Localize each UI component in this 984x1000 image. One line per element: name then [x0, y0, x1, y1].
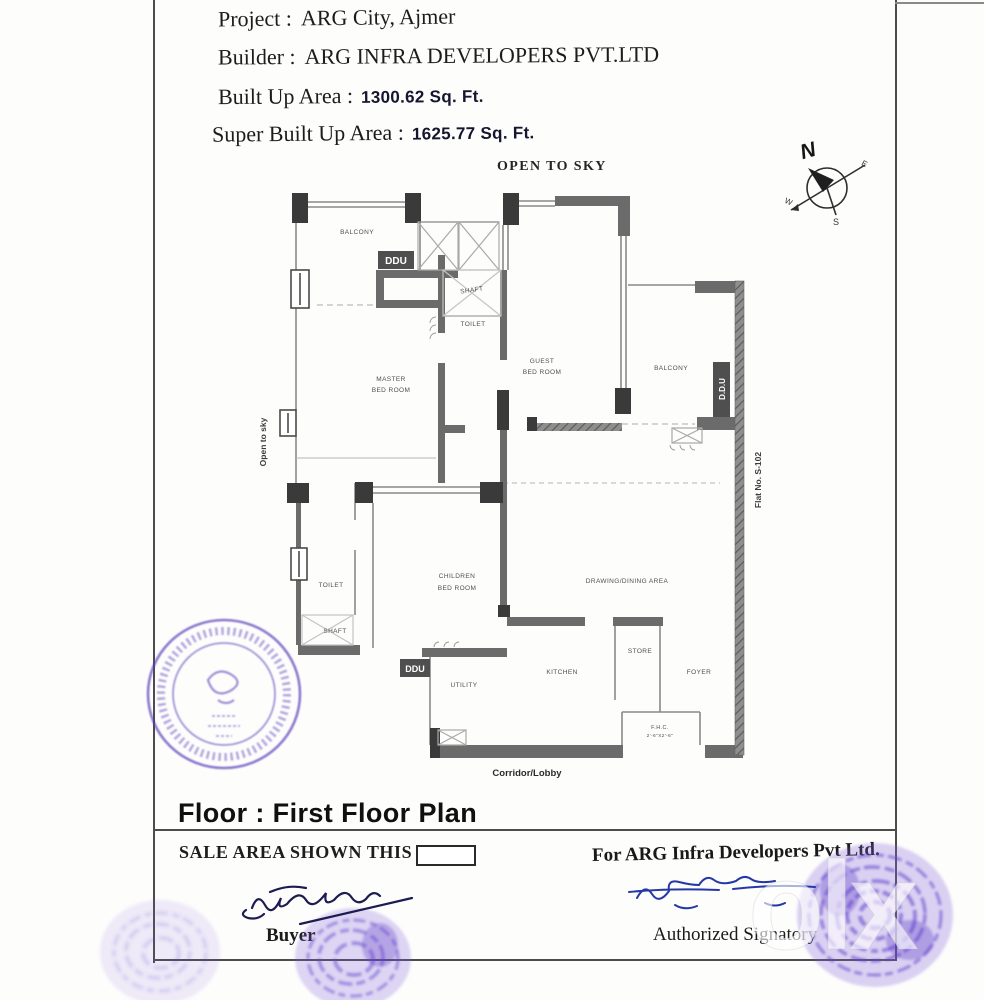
scanned-floor-plan-document: Project : ARG City, Ajmer Builder : ARG …: [0, 0, 984, 1000]
builder-row: Builder : ARG INFRA DEVELOPERS PVT.LTD: [218, 41, 659, 70]
project-label: Project :: [218, 6, 292, 33]
project-value: ARG City, Ajmer: [301, 4, 456, 32]
room-label-children-1: CHILDREN: [439, 573, 475, 580]
sale-area-swatch-box: [416, 845, 476, 866]
room-label-guest-1: GUEST: [530, 358, 554, 365]
room-label-fhc-2: 2'-6"X2'-6": [647, 733, 674, 739]
door-jambs: [287, 193, 631, 758]
super-built-up-label: Super Built Up Area :: [212, 120, 404, 148]
doc-border-left: [153, 0, 155, 963]
guest-window-sill: [533, 423, 622, 431]
right-exterior-wall: [735, 281, 744, 755]
builder-value: ARG INFRA DEVELOPERS PVT.LTD: [305, 41, 660, 69]
thin-walls: [296, 200, 700, 758]
builder-label: Builder :: [218, 44, 296, 71]
room-label-children-2: BED ROOM: [438, 585, 477, 592]
compass-south-label: S: [833, 217, 839, 227]
buyer-signature: [230, 870, 450, 940]
notary-stamp: [138, 608, 310, 780]
ddu-right-label: D.D.U: [718, 378, 727, 400]
doc-border-right: [895, 0, 897, 961]
built-up-value: 1300.62 Sq. Ft.: [361, 87, 484, 108]
sale-area-label: SALE AREA SHOWN THIS: [179, 842, 412, 863]
room-label-master-1: MASTER: [376, 376, 406, 383]
ddu-top-label: DDU: [385, 256, 407, 267]
ddu-bottom-label: DDU: [405, 664, 425, 674]
room-label-balcony-right: BALCONY: [654, 365, 688, 372]
compass-needle: [808, 168, 834, 192]
built-up-label: Built Up Area :: [218, 83, 353, 110]
room-label-foyer: FOYER: [687, 669, 711, 676]
room-label-balcony-top-left: BALCONY: [340, 229, 374, 236]
room-label-fhc-1: F.H.C.: [651, 725, 669, 731]
olx-watermark: olx: [748, 835, 914, 978]
room-label-kitchen: KITCHEN: [546, 669, 577, 676]
floor-plan-svg: DDU D.D.U DDU BALCONY SHAFT TOILET MASTE…: [250, 155, 770, 795]
room-label-toilet-upper: TOILET: [460, 321, 485, 328]
room-label-toilet-lower: TOILET: [318, 582, 343, 589]
faint-lines: [296, 458, 720, 483]
project-row: Project : ARG City, Ajmer: [218, 4, 456, 33]
room-label-guest-2: BED ROOM: [523, 369, 562, 376]
doc-border-top-right: [895, 2, 984, 4]
super-built-up-value: 1625.77 Sq. Ft.: [412, 123, 535, 144]
corridor-lobby-label: Corridor/Lobby: [492, 768, 562, 779]
room-label-shaft-lower: SHAFT: [323, 628, 346, 635]
room-label-drawing-dining: DRAWING/DINING AREA: [586, 578, 669, 585]
room-label-store: STORE: [628, 648, 653, 655]
fingerprint-left: [88, 890, 238, 1000]
room-label-master-2: BED ROOM: [372, 387, 411, 394]
open-to-sky-left-label: Open to sky: [258, 417, 268, 466]
flat-no-label: Flat No. S-102: [753, 452, 763, 508]
floor-title: Floor : First Floor Plan: [178, 798, 477, 829]
compass-icon: N E S W: [782, 130, 874, 230]
window-blocks: [280, 270, 309, 580]
super-built-up-area-row: Super Built Up Area : 1625.77 Sq. Ft.: [212, 118, 535, 147]
room-label-utility: UTILITY: [451, 682, 478, 689]
walls: [296, 196, 743, 758]
ddu-boxes: DDU D.D.U DDU: [378, 251, 730, 677]
compass-west-label: W: [783, 196, 794, 207]
room-label-shaft-upper: SHAFT: [460, 285, 484, 295]
built-up-area-row: Built Up Area : 1300.62 Sq. Ft.: [218, 82, 484, 110]
compass-north-label: N: [797, 138, 819, 165]
